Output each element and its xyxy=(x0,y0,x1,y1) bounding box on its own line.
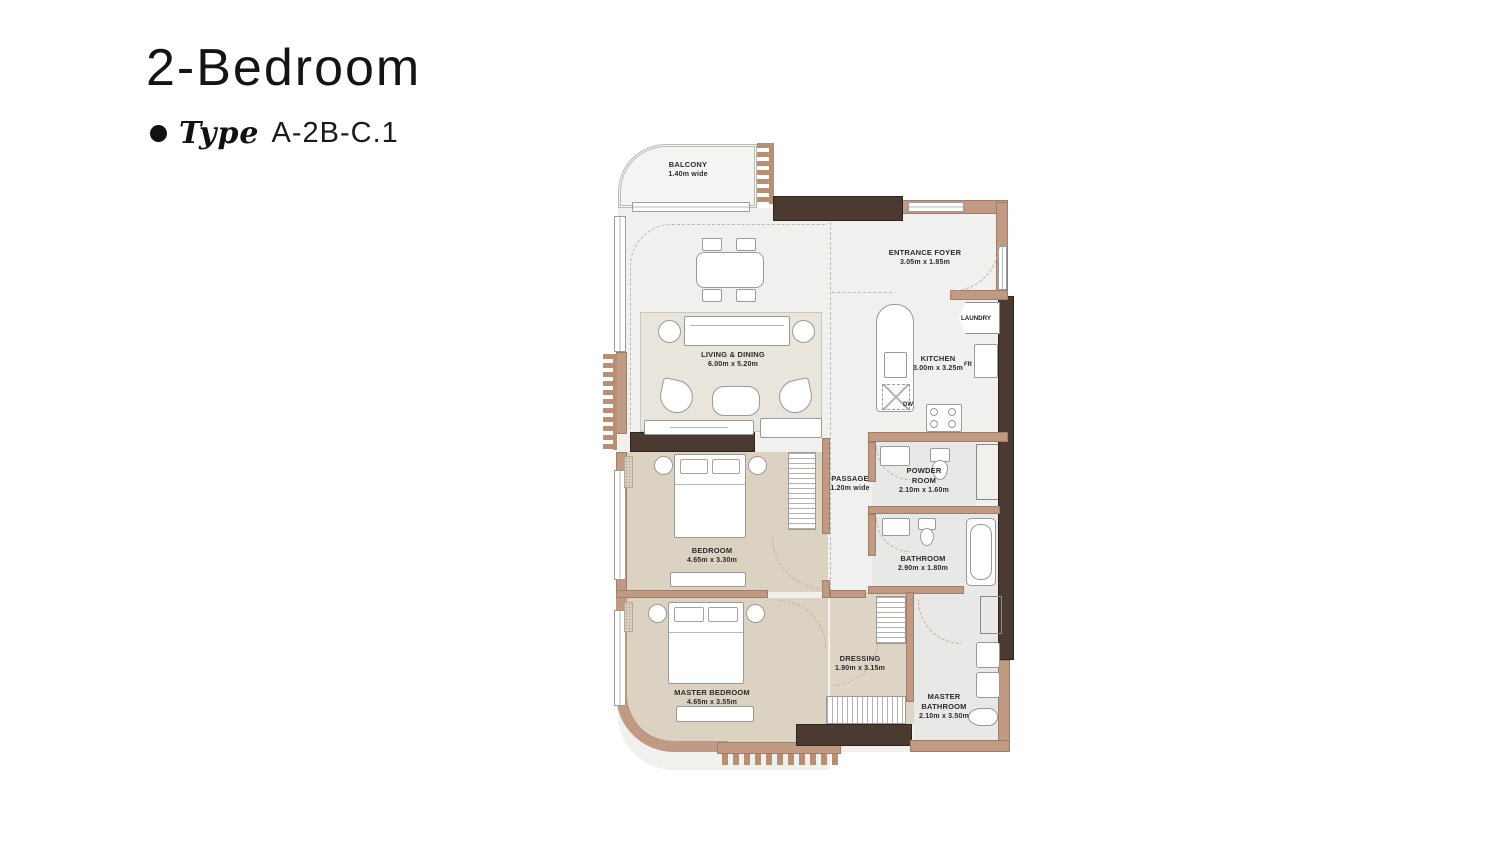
window-top xyxy=(908,202,964,212)
master-bathroom-label: MASTER BATHROOM2.10m x 3.50m xyxy=(912,692,976,721)
nightstand xyxy=(648,604,667,623)
master-bedroom-label: MASTER BEDROOM4.65m x 3.55m xyxy=(657,688,767,707)
balcony-louver-spine xyxy=(769,143,774,204)
passage-label: PASSAGE1.20m wide xyxy=(805,474,895,493)
side-table xyxy=(792,320,815,343)
pillow xyxy=(680,459,708,474)
balcony-sliding-door xyxy=(632,202,750,212)
burner xyxy=(948,420,956,428)
hatch-master-corner xyxy=(624,602,633,632)
master-sink xyxy=(976,672,1000,698)
dressing-label: DRESSING1.90m x 3.15m xyxy=(815,654,905,673)
sideboard xyxy=(760,418,822,438)
dining-chair xyxy=(736,289,756,302)
nightstand xyxy=(748,456,767,475)
floorplan: DW FR LAUNDRY xyxy=(600,140,1040,790)
master-sink xyxy=(976,642,1000,668)
floorplan-page: { "header": { "title": "2-Bedroom", "typ… xyxy=(0,0,1500,843)
blanket-line xyxy=(675,484,745,485)
fridge xyxy=(974,344,998,378)
tv-line xyxy=(670,427,728,428)
kitchen-label: KITCHEN3.00m x 3.25m xyxy=(900,354,976,373)
unit-type-row: Type A-2B-C.1 xyxy=(150,116,399,151)
dressing-wardrobe-bottom xyxy=(826,696,906,724)
balcony-label: BALCONY1.40m wide xyxy=(638,160,738,179)
page-title: 2-Bedroom xyxy=(146,38,421,98)
powder-sink xyxy=(880,446,910,466)
burner xyxy=(930,420,938,428)
wall-dark-bottom xyxy=(796,724,912,746)
laundry-label: LAUNDRY xyxy=(961,315,991,322)
left-louver-spine xyxy=(613,354,617,450)
dining-chair xyxy=(702,238,722,251)
pillow xyxy=(712,459,740,474)
bullet-icon xyxy=(150,125,167,142)
dishwasher-label: DW xyxy=(903,402,913,408)
bedroom-dresser xyxy=(670,572,746,587)
wall-bottom-right xyxy=(910,740,1010,752)
bedroom-label: BEDROOM4.65m x 3.30m xyxy=(657,546,767,565)
passage-boundary-dash xyxy=(830,212,831,590)
sofa-cushion-line xyxy=(690,325,784,326)
bathtub-inner xyxy=(970,524,992,580)
balcony-louver-teeth xyxy=(757,143,769,204)
bottom-louver-teeth xyxy=(722,754,840,765)
nightstand xyxy=(654,456,673,475)
blanket-line xyxy=(669,632,743,633)
hatch-bedroom-corner xyxy=(624,456,633,488)
living-dining-label: LIVING & DINING6.00m x 5.20m xyxy=(678,350,788,369)
wall-dressing-top-left xyxy=(830,590,866,598)
burner xyxy=(930,408,938,416)
side-table xyxy=(658,320,681,343)
nightstand xyxy=(746,604,765,623)
entrance-foyer-label: ENTRANCE FOYER3.05m x 1.85m xyxy=(888,248,962,267)
left-louver-teeth xyxy=(603,354,613,450)
wall-dark-top xyxy=(773,196,903,221)
wall-laundry-top xyxy=(950,290,1008,300)
pillow xyxy=(708,607,738,622)
wall-powder-bathroom xyxy=(868,506,1000,514)
wall-kitchen-powder xyxy=(868,432,1008,442)
dressing-wardrobe-side xyxy=(876,596,906,644)
powder-room-label: POWDER ROOM2.10m x 1.60m xyxy=(894,466,954,495)
coffee-table xyxy=(712,386,760,416)
burner xyxy=(948,408,956,416)
entrance-door-gap xyxy=(998,246,1007,290)
wall-bathroom-left xyxy=(868,514,876,556)
dining-chair xyxy=(702,289,722,302)
bathroom-sink xyxy=(882,518,910,536)
dining-table xyxy=(696,252,764,288)
wall-left-living xyxy=(616,352,627,434)
pillow xyxy=(674,607,704,622)
type-value: A-2B-C.1 xyxy=(272,117,399,150)
window-living xyxy=(614,216,626,352)
master-dresser xyxy=(676,706,754,722)
wall-bedroom-master xyxy=(616,590,768,598)
wall-dark-living-bedroom xyxy=(630,432,755,452)
wall-bathroom-bottom xyxy=(868,586,964,594)
sofa xyxy=(684,316,790,346)
bathroom-label: BATHROOM2.90m x 1.80m xyxy=(878,554,968,573)
foyer-boundary-dash xyxy=(832,292,892,293)
type-label: Type xyxy=(179,116,260,151)
wall-dressing-masterbath xyxy=(906,592,914,702)
dining-chair xyxy=(736,238,756,251)
master-shower xyxy=(980,596,1002,634)
